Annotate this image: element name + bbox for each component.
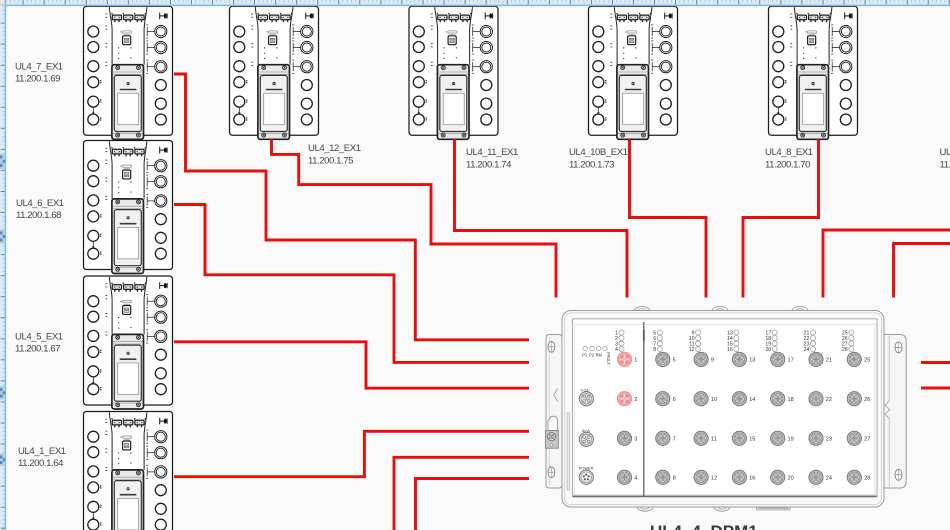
svg-text:17: 17 <box>788 358 794 364</box>
svg-text:UL4_1_EX1: UL4_1_EX1 <box>18 446 66 457</box>
svg-text:11.200.1.64: 11.200.1.64 <box>18 458 64 469</box>
svg-text:4: 4 <box>634 476 637 482</box>
svg-text:UL4_6_EX1: UL4_6_EX1 <box>16 198 64 209</box>
svg-text:11.200.1.69: 11.200.1.69 <box>15 74 60 85</box>
svg-text:UL4_5_EX1: UL4_5_EX1 <box>15 332 63 343</box>
svg-text:UL4_11_EX1: UL4_11_EX1 <box>466 147 518 158</box>
svg-text:8: 8 <box>673 476 676 482</box>
svg-text:11.200.1.74: 11.200.1.74 <box>466 159 512 170</box>
svg-text:UL4_8_EX1: UL4_8_EX1 <box>765 147 813 158</box>
svg-text:RM: RM <box>596 353 603 358</box>
svg-text:11.200.1.71: 11.200.1.71 <box>940 159 950 170</box>
svg-text:20: 20 <box>788 476 794 482</box>
svg-text:FAULT: FAULT <box>606 352 611 365</box>
svg-text:24: 24 <box>826 476 832 482</box>
svg-text:25: 25 <box>864 358 870 364</box>
svg-text:UL4_9_EX1: UL4_9_EX1 <box>940 147 950 158</box>
svg-text:27: 27 <box>864 437 870 443</box>
svg-text:16: 16 <box>749 476 755 482</box>
svg-text:11.200.1.70: 11.200.1.70 <box>765 159 810 170</box>
svg-text:UL4_7_EX1: UL4_7_EX1 <box>15 61 63 72</box>
svg-text:28: 28 <box>864 476 870 482</box>
svg-text:P1: P1 <box>582 353 588 358</box>
svg-text:UL4_10B_EX1: UL4_10B_EX1 <box>569 147 628 158</box>
svg-text:6: 6 <box>673 397 676 403</box>
svg-text:4: 4 <box>615 347 618 353</box>
svg-text:23: 23 <box>826 437 832 443</box>
svg-text:28: 28 <box>842 347 848 353</box>
svg-text:22: 22 <box>826 397 832 403</box>
svg-text:11: 11 <box>711 437 717 443</box>
svg-text:9: 9 <box>711 358 714 364</box>
svg-text:2: 2 <box>634 397 637 403</box>
svg-text:8: 8 <box>653 347 656 353</box>
svg-text:12: 12 <box>711 476 717 482</box>
svg-text:20: 20 <box>765 347 771 353</box>
svg-text:14: 14 <box>749 397 755 403</box>
svg-text:UL4_12_EX1: UL4_12_EX1 <box>308 143 361 154</box>
svg-text:11.200.1.73: 11.200.1.73 <box>569 159 614 170</box>
svg-text:UL4_4_DPM1: UL4_4_DPM1 <box>650 522 758 530</box>
svg-text:18: 18 <box>788 397 794 403</box>
svg-text:12: 12 <box>689 347 695 353</box>
svg-text:P2: P2 <box>589 353 595 358</box>
svg-text:11.200.1.75: 11.200.1.75 <box>308 155 353 166</box>
svg-text:11.200.1.67: 11.200.1.67 <box>15 344 60 355</box>
svg-text:26: 26 <box>864 397 870 403</box>
svg-text:13: 13 <box>749 358 755 364</box>
svg-text:15: 15 <box>749 437 755 443</box>
svg-text:5: 5 <box>673 358 676 364</box>
svg-text:11.200.1.68: 11.200.1.68 <box>16 210 61 221</box>
svg-text:24: 24 <box>804 347 810 353</box>
svg-text:1: 1 <box>634 358 637 364</box>
svg-text:7: 7 <box>673 437 676 443</box>
svg-text:21: 21 <box>826 358 832 364</box>
svg-text:19: 19 <box>788 437 794 443</box>
svg-text:3: 3 <box>634 437 637 443</box>
svg-text:10: 10 <box>711 397 717 403</box>
svg-text:16: 16 <box>727 347 733 353</box>
